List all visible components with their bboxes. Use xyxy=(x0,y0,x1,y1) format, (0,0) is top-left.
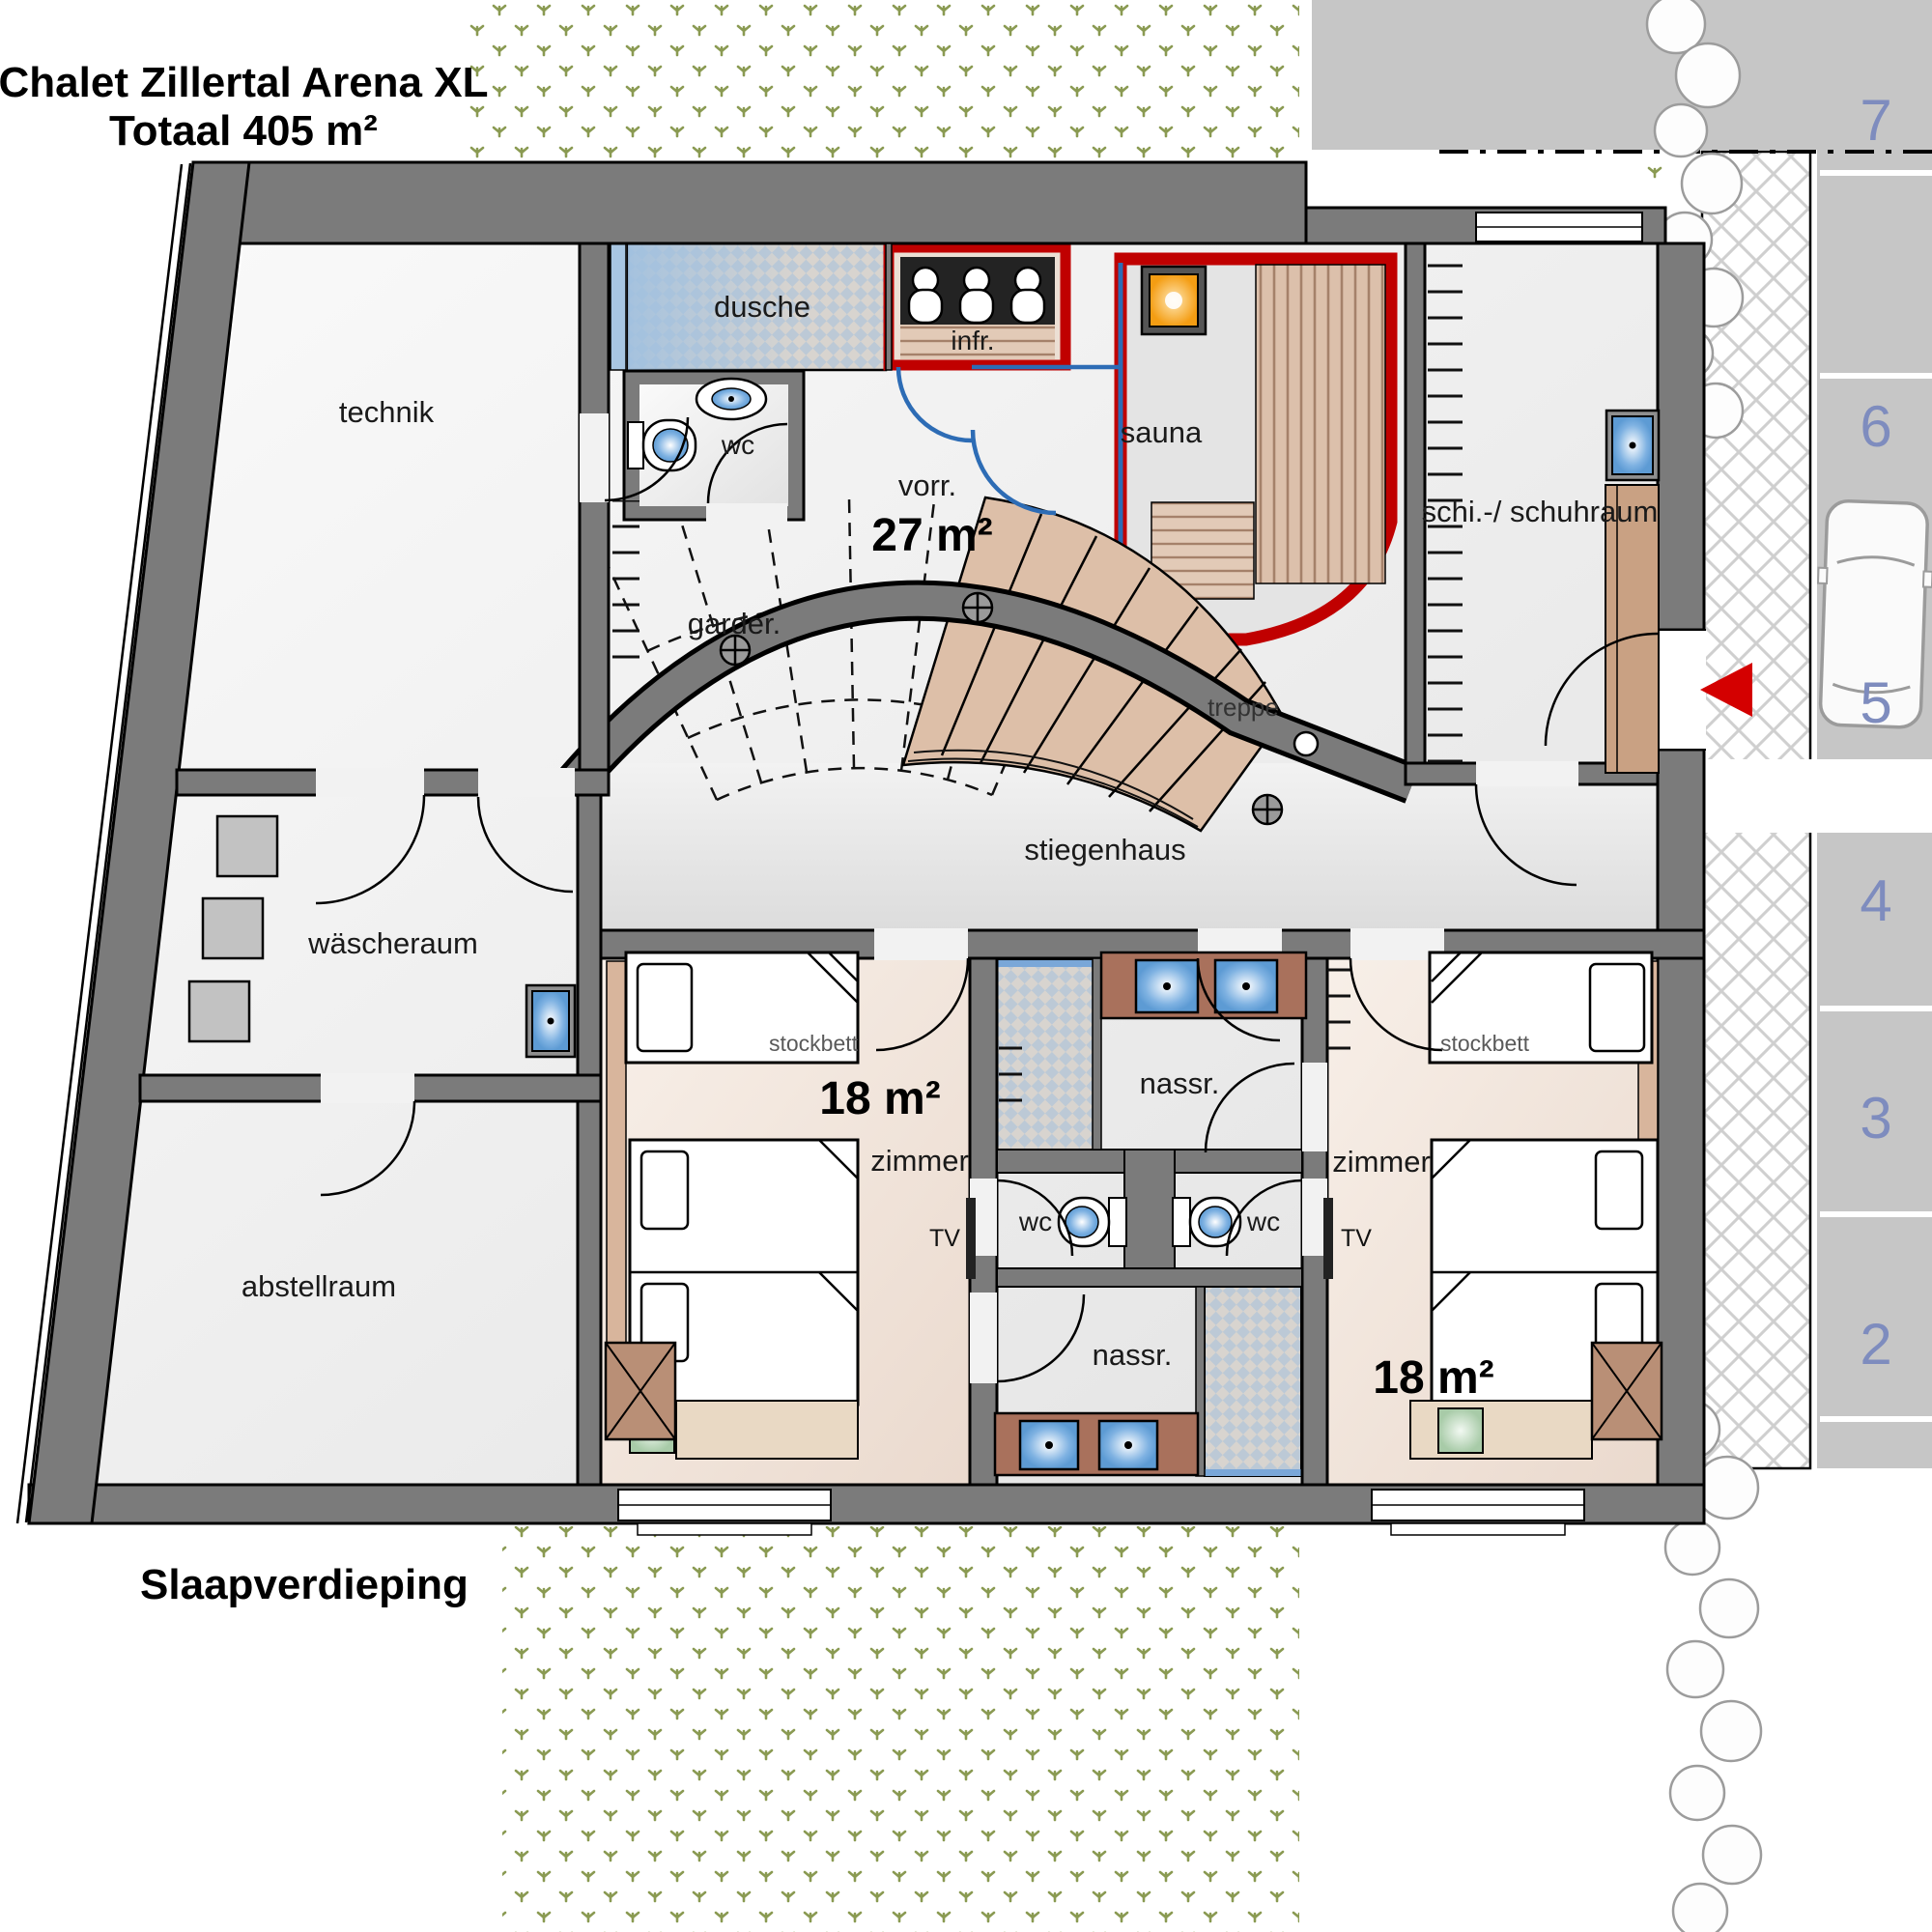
floor-label: Slaapverdieping xyxy=(140,1561,469,1608)
garderobe-shelf xyxy=(612,500,639,667)
label-waescheraum: wäscheraum xyxy=(307,926,478,960)
toilet-right xyxy=(1173,1198,1240,1246)
driveway-entry xyxy=(1697,759,1932,833)
label-stiegenhaus: stiegenhaus xyxy=(1024,833,1185,867)
x-wardrobe-left xyxy=(606,1343,675,1439)
infrared-person-icons xyxy=(909,268,1044,323)
parking-space-7: 7 xyxy=(1860,88,1891,153)
floor-plan-sheet: Chalet Zillertal Arena XL Totaal 405 m² … xyxy=(0,0,1932,1932)
schuhraum-sink xyxy=(1606,411,1659,480)
page-title-line1: Chalet Zillertal Arena XL xyxy=(0,59,488,106)
wall-dusche-infr xyxy=(886,243,892,370)
label-wc-left: wc xyxy=(1018,1207,1052,1236)
label-tv-left: TV xyxy=(929,1225,960,1252)
page-title-line2: Totaal 405 m² xyxy=(109,107,378,155)
window-bottom-left xyxy=(618,1490,831,1535)
wall-top xyxy=(193,162,1306,243)
column-icon xyxy=(963,593,992,622)
label-schuhraum: schi.-/ schuhraum xyxy=(1422,495,1659,528)
column-icon xyxy=(1253,795,1282,824)
label-garder: garder. xyxy=(688,607,781,640)
parking-space-5: 5 xyxy=(1860,670,1891,735)
wall-waescheraum-right xyxy=(578,795,601,1485)
wc-top-toilet xyxy=(628,420,696,470)
shower-lower xyxy=(1205,1285,1301,1476)
tv-right xyxy=(1323,1198,1333,1279)
label-treppe: treppe xyxy=(1207,693,1279,722)
label-nassr-top: nassr. xyxy=(1140,1066,1220,1100)
label-wc-top: wc xyxy=(721,430,754,460)
label-tv-right: TV xyxy=(1341,1225,1372,1252)
label-infr: infr. xyxy=(951,326,994,355)
label-area-right: 18 m² xyxy=(1373,1352,1493,1404)
label-vorr: vorr. xyxy=(898,469,956,502)
dusche-bench-blue xyxy=(611,243,626,370)
driveway-top-right xyxy=(1312,0,1932,150)
label-dusche: dusche xyxy=(714,290,810,324)
label-zimmer-left: zimmer xyxy=(870,1144,969,1178)
parking-space-3: 3 xyxy=(1860,1086,1891,1151)
label-sauna: sauna xyxy=(1121,415,1203,449)
label-abstellraum: abstellraum xyxy=(241,1269,396,1303)
parking-space-2: 2 xyxy=(1860,1312,1891,1377)
grass-bottom xyxy=(502,1526,1299,1932)
wall-sanitary-h2 xyxy=(997,1268,1302,1287)
label-area-left: 18 m² xyxy=(819,1073,940,1124)
label-vorr-area: 27 m² xyxy=(871,510,992,561)
vanity-lower xyxy=(995,1413,1198,1475)
zimmer-left-wardrobe-strip xyxy=(607,961,626,1343)
floor-plan-drawing: Chalet Zillertal Arena XL Totaal 405 m² … xyxy=(0,0,1932,1932)
x-wardrobe-right xyxy=(1592,1343,1662,1439)
wall-technik-right xyxy=(580,243,609,770)
radiator-right xyxy=(1327,964,1350,1051)
label-stockbett-left: stockbett xyxy=(769,1031,859,1056)
sauna-heater xyxy=(1142,267,1206,334)
grass-top xyxy=(464,0,1299,160)
toilet-left xyxy=(1059,1198,1126,1246)
sauna-bench-vertical xyxy=(1256,265,1385,583)
wall-right-upper xyxy=(1658,243,1704,630)
wc-top-sink xyxy=(696,379,766,419)
label-nassr-bottom: nassr. xyxy=(1093,1338,1173,1372)
label-stockbett-right: stockbett xyxy=(1440,1031,1530,1056)
parking-space-4: 4 xyxy=(1860,868,1891,933)
label-wc-right: wc xyxy=(1246,1207,1280,1236)
radiator-left xyxy=(999,1036,1022,1122)
parking-space-6: 6 xyxy=(1860,394,1891,459)
wall-shower-sep-upper xyxy=(1093,958,1101,1150)
newel-post xyxy=(1294,732,1318,755)
bench-right xyxy=(1410,1401,1592,1459)
waescheraum-sink xyxy=(526,985,575,1057)
schuhraum-window xyxy=(1476,213,1642,241)
label-zimmer-right: zimmer xyxy=(1332,1145,1431,1179)
window-bottom-right xyxy=(1372,1490,1584,1535)
wall-wc-divider xyxy=(1124,1150,1175,1268)
green-cushion-right xyxy=(1438,1408,1483,1453)
label-technik: technik xyxy=(339,395,435,429)
wall-right-lower xyxy=(1658,750,1704,1485)
tv-left xyxy=(966,1198,976,1279)
